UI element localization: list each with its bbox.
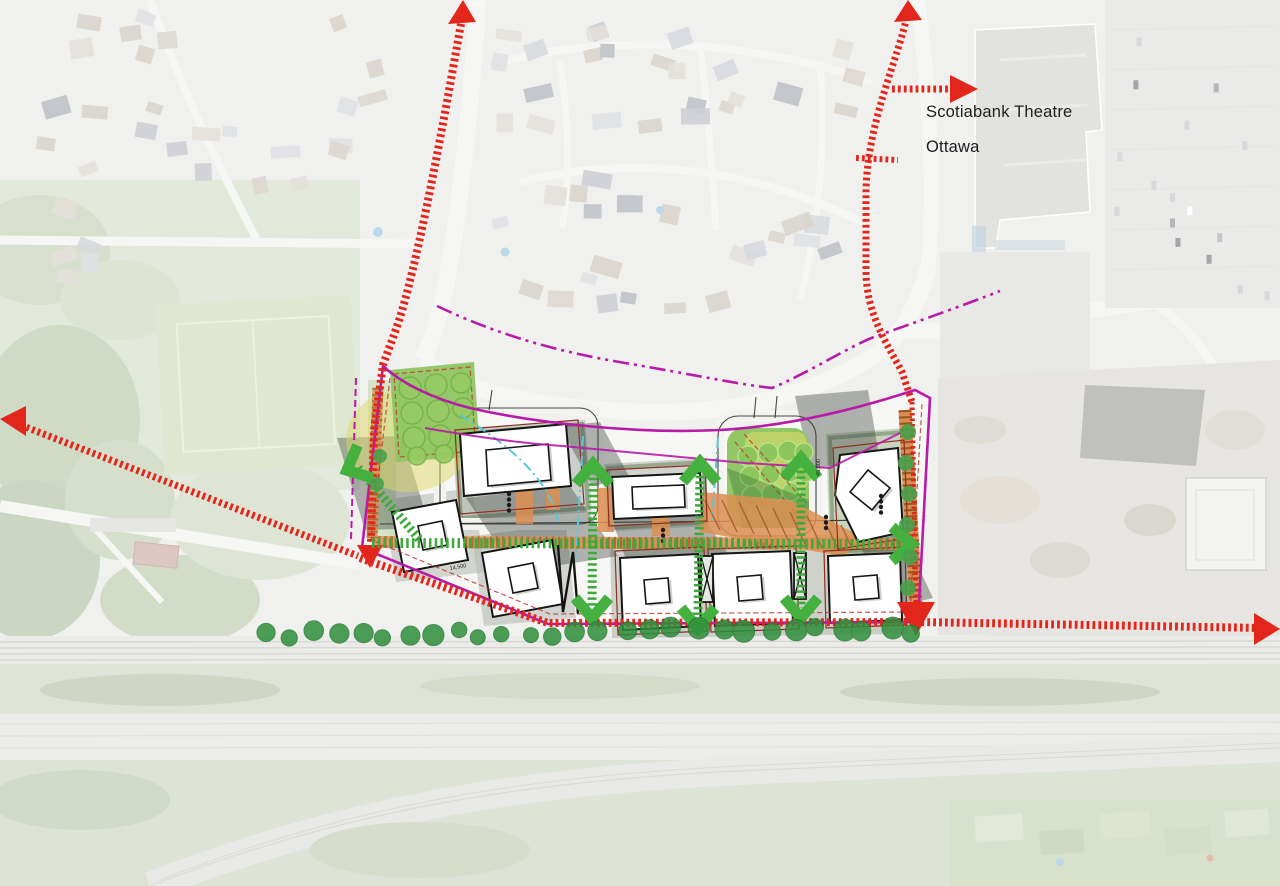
theatre-label-line2: Ottawa [926,138,980,156]
building-square-west-1 [392,500,468,572]
building-row-south-2 [712,551,793,626]
dimension-label-2: 45,000 [816,459,822,476]
building-bar-northwest [460,424,571,496]
site-plan-aerial-map: 14,500 45,000 Scotiabank Theatre Ottawa [0,0,1280,886]
theatre-label-line1: Scotiabank Theatre [926,103,1072,121]
